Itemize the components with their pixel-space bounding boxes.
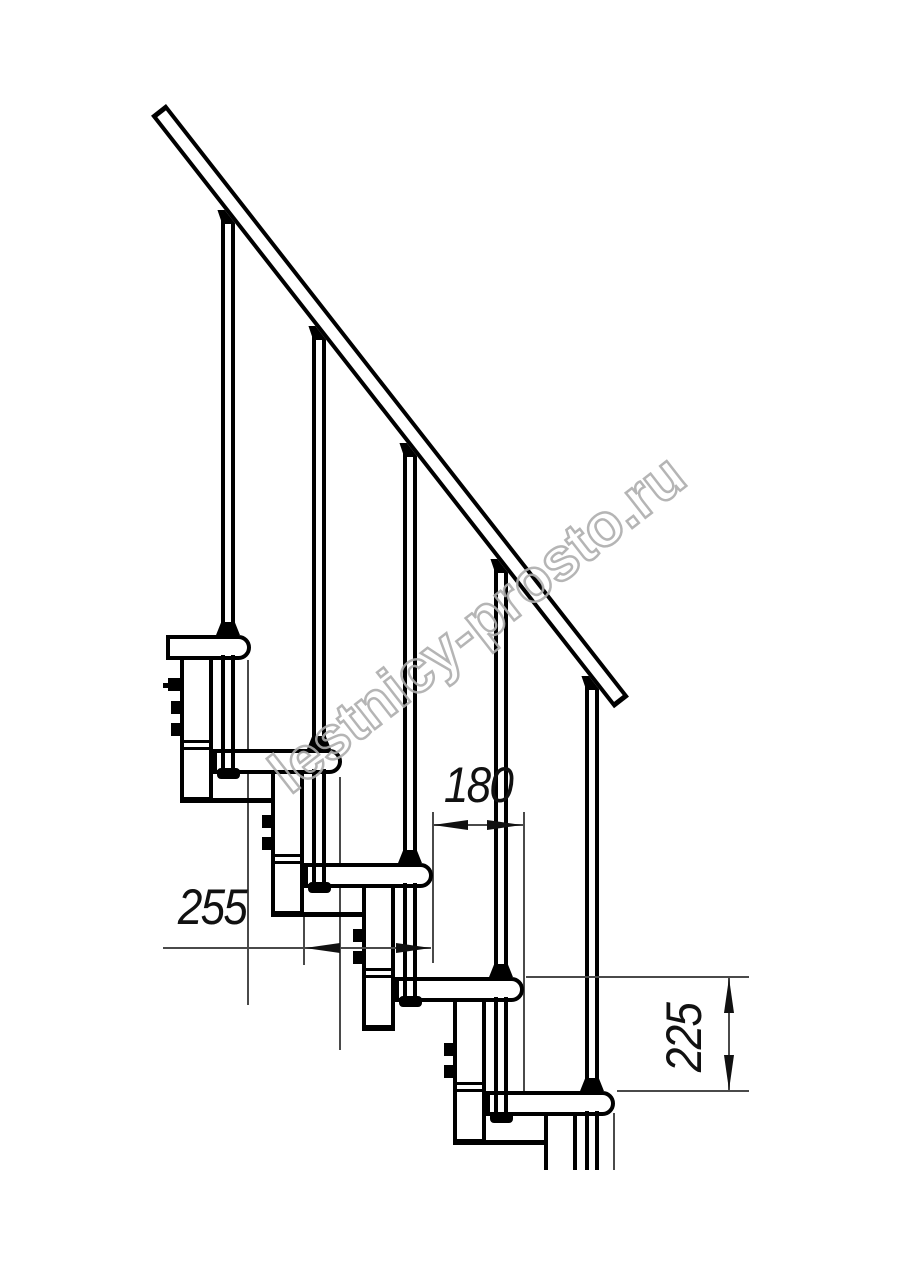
baluster-rod xyxy=(403,883,407,999)
baluster-rod xyxy=(231,655,235,771)
baluster-rod xyxy=(504,997,508,1113)
baluster-rod xyxy=(221,655,225,771)
rod-nut xyxy=(308,882,331,893)
column-collar xyxy=(453,1089,486,1092)
column-collar xyxy=(271,854,304,857)
dim-arrow-left-icon xyxy=(433,820,468,830)
tread-1 xyxy=(166,635,251,660)
module-link xyxy=(453,1140,546,1145)
column-collar xyxy=(362,975,395,978)
baluster-2 xyxy=(312,336,316,749)
dimension-label-180: 180 xyxy=(432,756,524,814)
bolt xyxy=(171,701,181,714)
column-1 xyxy=(180,653,213,801)
rod-nut xyxy=(490,1112,513,1123)
column-4 xyxy=(453,995,486,1143)
bolt xyxy=(353,929,363,942)
module-link xyxy=(362,1026,395,1031)
bolt xyxy=(353,951,363,964)
baluster-rod xyxy=(494,997,498,1113)
column-collar xyxy=(453,1082,486,1085)
extension-line xyxy=(613,1113,615,1170)
baluster-rod xyxy=(312,769,316,885)
baluster-bottom-connector xyxy=(306,736,332,749)
bolt xyxy=(262,837,272,850)
column-collar xyxy=(271,861,304,864)
column-2 xyxy=(271,767,304,915)
extension-line xyxy=(523,812,525,1091)
module-link xyxy=(180,798,273,803)
baluster-5 xyxy=(585,686,589,1091)
column-5-edge xyxy=(573,1110,577,1170)
extension-line xyxy=(432,812,434,963)
baluster-5 xyxy=(595,686,599,1091)
dim-arrow-down-icon xyxy=(724,1055,734,1090)
baluster-rod xyxy=(413,883,417,999)
column-collar xyxy=(180,747,213,750)
column-5-edge xyxy=(544,1110,548,1170)
column-collar xyxy=(362,968,395,971)
baluster-bottom-connector xyxy=(215,622,241,635)
dimension-label-255: 255 xyxy=(166,878,258,936)
bolt xyxy=(171,723,181,736)
baluster-2 xyxy=(322,336,326,749)
baluster-1 xyxy=(231,220,235,635)
dim-arrow-left-icon xyxy=(305,943,340,953)
rod-nut xyxy=(217,768,240,779)
dim-arrow-up-icon xyxy=(724,978,734,1013)
bolt xyxy=(262,815,272,828)
bolt xyxy=(444,1065,454,1078)
module-link xyxy=(271,912,364,917)
baluster-rod xyxy=(585,1111,589,1170)
extension-line xyxy=(303,915,305,965)
baluster-1 xyxy=(221,220,225,635)
column-3 xyxy=(362,881,395,1029)
extension-line xyxy=(247,660,249,1005)
baluster-rod xyxy=(595,1111,599,1170)
baluster-rod xyxy=(322,769,326,885)
dimension-line-255 xyxy=(163,947,431,949)
baluster-bottom-connector xyxy=(488,964,514,977)
baluster-bottom-connector xyxy=(397,850,423,863)
baluster-3 xyxy=(413,453,417,863)
column-collar xyxy=(180,740,213,743)
baluster-bottom-connector xyxy=(579,1078,605,1091)
baluster-3 xyxy=(403,453,407,863)
extension-line-225-top xyxy=(526,976,749,978)
dim-arrow-right-icon xyxy=(396,943,431,953)
technical-drawing-canvas: 255 180 225 lestnicy-prosto.ru xyxy=(0,0,914,1280)
rod-nut xyxy=(399,996,422,1007)
dim-arrow-right-icon xyxy=(487,820,522,830)
bolt xyxy=(444,1043,454,1056)
dimension-label-225: 225 xyxy=(655,992,713,1084)
